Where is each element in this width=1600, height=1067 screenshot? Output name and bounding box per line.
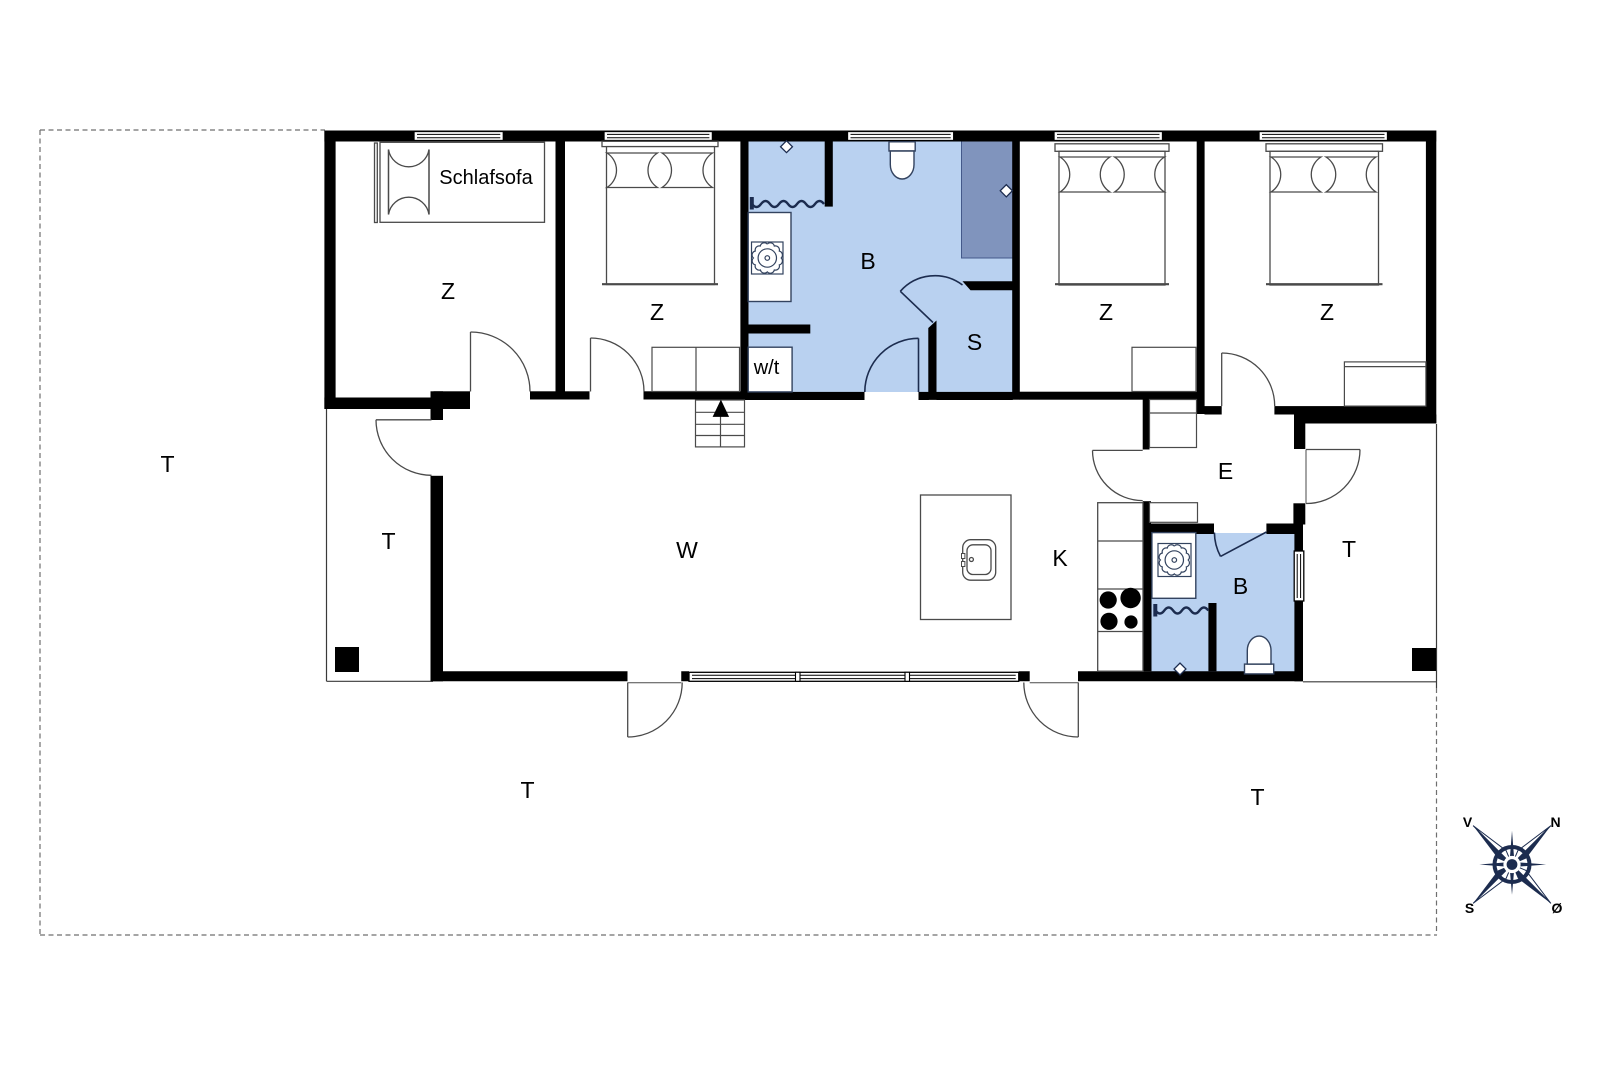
- svg-text:S: S: [967, 329, 982, 355]
- svg-text:V: V: [1463, 814, 1473, 830]
- svg-text:Ø: Ø: [1552, 900, 1563, 916]
- svg-text:T: T: [1250, 784, 1264, 810]
- svg-text:w/t: w/t: [753, 357, 780, 379]
- svg-text:B: B: [860, 248, 875, 274]
- svg-text:E: E: [1218, 458, 1233, 484]
- svg-text:T: T: [381, 528, 395, 554]
- svg-text:W: W: [676, 537, 698, 563]
- svg-text:T: T: [1342, 536, 1356, 562]
- svg-text:Z: Z: [1099, 299, 1113, 325]
- svg-text:B: B: [1233, 573, 1248, 599]
- svg-text:N: N: [1550, 814, 1560, 830]
- svg-text:T: T: [160, 451, 174, 477]
- svg-text:K: K: [1052, 545, 1068, 571]
- svg-text:Z: Z: [441, 278, 455, 304]
- svg-text:Z: Z: [650, 299, 664, 325]
- svg-text:Schlafsofa: Schlafsofa: [439, 167, 533, 189]
- svg-text:S: S: [1465, 900, 1474, 916]
- svg-text:Z: Z: [1320, 299, 1334, 325]
- svg-text:T: T: [520, 777, 534, 803]
